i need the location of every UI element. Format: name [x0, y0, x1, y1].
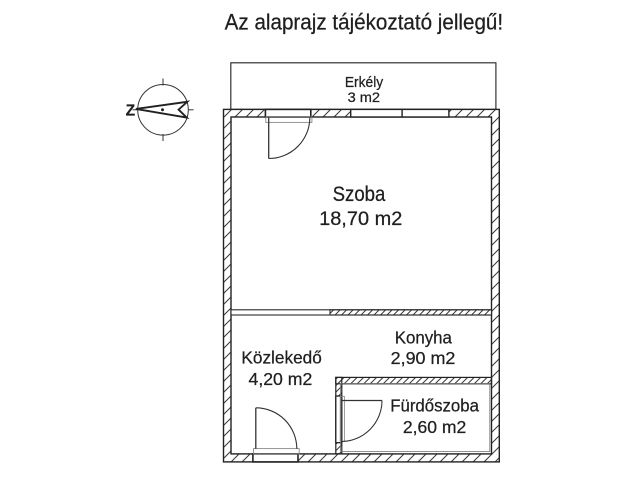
- svg-text:Erkély: Erkély: [345, 75, 384, 91]
- svg-text:Az alaprajz tájékoztató jelleg: Az alaprajz tájékoztató jellegű!: [225, 10, 503, 35]
- svg-text:2,60 m2: 2,60 m2: [403, 417, 466, 437]
- svg-text:3 m2: 3 m2: [348, 90, 381, 106]
- svg-text:Szoba: Szoba: [333, 183, 386, 207]
- svg-text:Z: Z: [126, 102, 136, 119]
- svg-text:4,20 m2: 4,20 m2: [249, 369, 313, 389]
- svg-text:2,90 m2: 2,90 m2: [391, 348, 456, 368]
- svg-text:Konyha: Konyha: [395, 327, 453, 347]
- svg-text:18,70 m2: 18,70 m2: [319, 208, 402, 230]
- svg-text:Közlekedő: Közlekedő: [241, 347, 321, 367]
- svg-text:Fürdőszoba: Fürdőszoba: [390, 396, 479, 415]
